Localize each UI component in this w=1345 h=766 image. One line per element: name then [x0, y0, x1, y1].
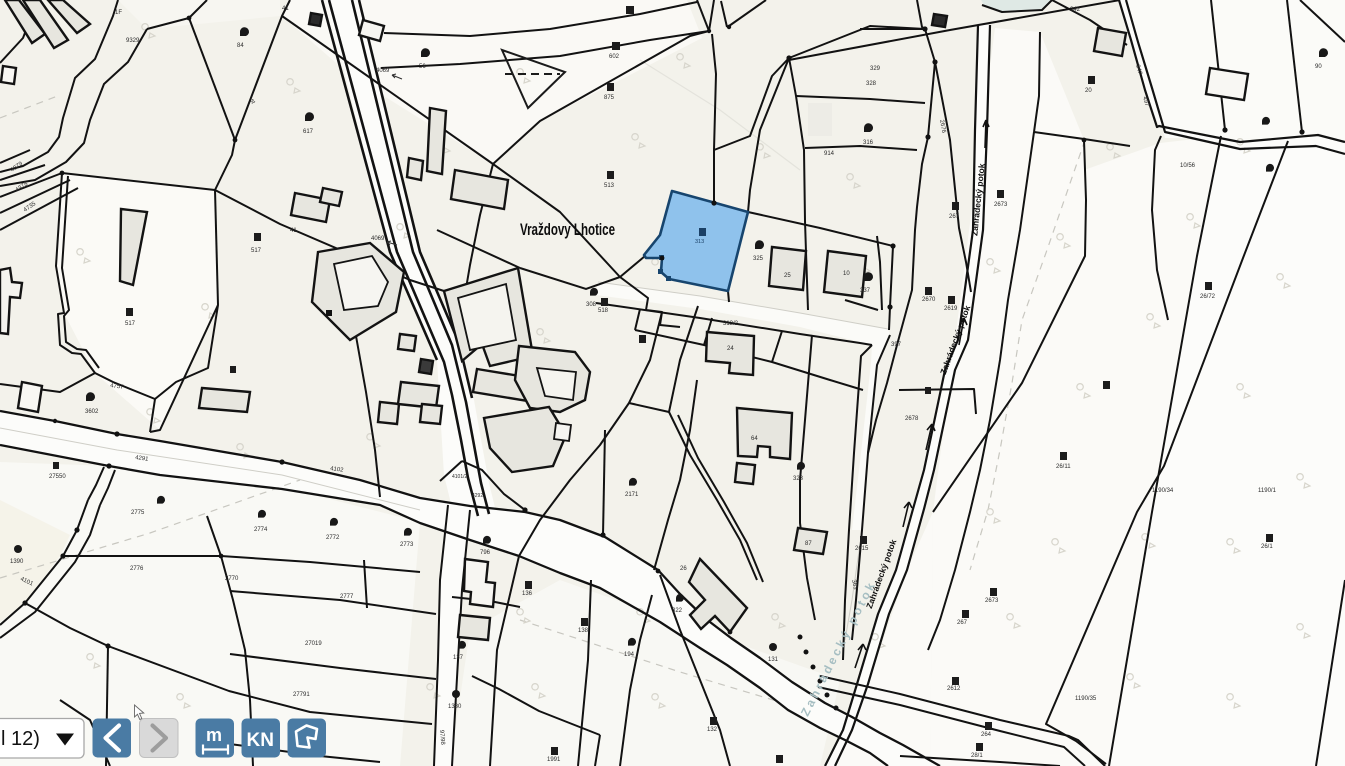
svg-text:2619: 2619: [944, 306, 958, 312]
svg-text:27019: 27019: [305, 641, 322, 647]
svg-text:194: 194: [624, 652, 635, 658]
svg-text:1190/34: 1190/34: [1152, 488, 1174, 494]
svg-text:20: 20: [1085, 88, 1092, 94]
svg-text:602: 602: [609, 54, 620, 60]
svg-text:2612: 2612: [947, 686, 961, 692]
svg-text:2770: 2770: [225, 576, 239, 582]
svg-text:1190/35: 1190/35: [1075, 696, 1097, 702]
svg-text:322: 322: [672, 608, 683, 614]
svg-text:517: 517: [251, 248, 262, 254]
svg-text:308: 308: [586, 302, 597, 308]
svg-text:328: 328: [866, 81, 877, 87]
svg-text:517: 517: [125, 321, 136, 327]
svg-text:25: 25: [784, 273, 791, 279]
svg-text:264: 264: [981, 732, 992, 738]
svg-text:337: 337: [860, 288, 871, 294]
svg-text:316: 316: [863, 140, 874, 146]
svg-text:4069: 4069: [371, 236, 385, 242]
svg-text:2773: 2773: [400, 542, 414, 548]
svg-text:87: 87: [805, 541, 812, 547]
svg-text:313: 313: [695, 239, 704, 245]
svg-text:2670: 2670: [922, 297, 936, 303]
svg-text:27791: 27791: [293, 692, 310, 698]
svg-text:136: 136: [522, 591, 533, 597]
svg-text:4101/2: 4101/2: [452, 474, 468, 480]
svg-text:325: 325: [753, 256, 764, 262]
svg-text:313/2: 313/2: [723, 321, 739, 327]
svg-text:242: 242: [1070, 7, 1081, 13]
svg-text:2673: 2673: [985, 598, 999, 604]
svg-text:2615: 2615: [855, 546, 869, 552]
svg-text:m: m: [206, 725, 222, 745]
svg-text:4292: 4292: [472, 493, 483, 499]
svg-text:28/1: 28/1: [971, 753, 983, 759]
svg-text:1991: 1991: [547, 757, 561, 763]
svg-text:2775: 2775: [131, 510, 145, 516]
svg-text:3602: 3602: [85, 409, 99, 415]
svg-text:2777: 2777: [340, 594, 354, 600]
svg-text:90: 90: [1315, 64, 1322, 70]
svg-text:267: 267: [949, 214, 960, 220]
svg-text:1190/1: 1190/1: [1258, 488, 1277, 494]
svg-text:2772: 2772: [326, 535, 340, 541]
svg-text:27550: 27550: [49, 474, 66, 480]
svg-text:518: 518: [598, 308, 609, 314]
svg-text:875: 875: [604, 95, 615, 101]
svg-text:914: 914: [824, 151, 835, 157]
svg-text:26/1: 26/1: [1261, 544, 1273, 550]
svg-text:56: 56: [419, 64, 426, 70]
svg-text:26: 26: [680, 566, 687, 572]
svg-text:Vraždovy Lhotice: Vraždovy Lhotice: [520, 221, 615, 239]
svg-text:84: 84: [237, 43, 244, 49]
svg-text:131: 131: [768, 657, 779, 663]
svg-text:397: 397: [891, 342, 902, 348]
svg-text:513: 513: [604, 183, 615, 189]
svg-text:l 12): l 12): [1, 728, 40, 750]
svg-text:26/72: 26/72: [1200, 294, 1216, 300]
svg-text:10: 10: [843, 271, 850, 277]
svg-text:10/56: 10/56: [1180, 163, 1196, 169]
svg-text:138: 138: [578, 628, 589, 634]
svg-text:323: 323: [793, 476, 804, 482]
svg-text:9329: 9329: [126, 38, 140, 44]
svg-text:2774: 2774: [254, 527, 268, 533]
svg-text:2673: 2673: [994, 202, 1008, 208]
svg-text:KN: KN: [247, 730, 274, 751]
svg-text:24: 24: [727, 346, 734, 352]
svg-text:1390: 1390: [10, 559, 24, 565]
svg-text:132: 132: [707, 727, 718, 733]
svg-text:41: 41: [290, 228, 297, 234]
svg-text:2678: 2678: [905, 416, 919, 422]
svg-text:2171: 2171: [625, 492, 639, 498]
svg-text:1F: 1F: [115, 10, 122, 16]
svg-text:137: 137: [453, 655, 464, 661]
svg-text:26/11: 26/11: [1056, 464, 1071, 470]
svg-text:796: 796: [480, 550, 491, 556]
svg-text:1380: 1380: [448, 704, 462, 710]
svg-text:2776: 2776: [130, 566, 144, 572]
svg-text:267: 267: [957, 620, 968, 626]
svg-text:4069: 4069: [376, 68, 390, 74]
svg-text:64: 64: [751, 436, 758, 442]
svg-text:41: 41: [282, 6, 289, 12]
svg-text:617: 617: [303, 129, 314, 135]
svg-text:329: 329: [870, 66, 881, 72]
